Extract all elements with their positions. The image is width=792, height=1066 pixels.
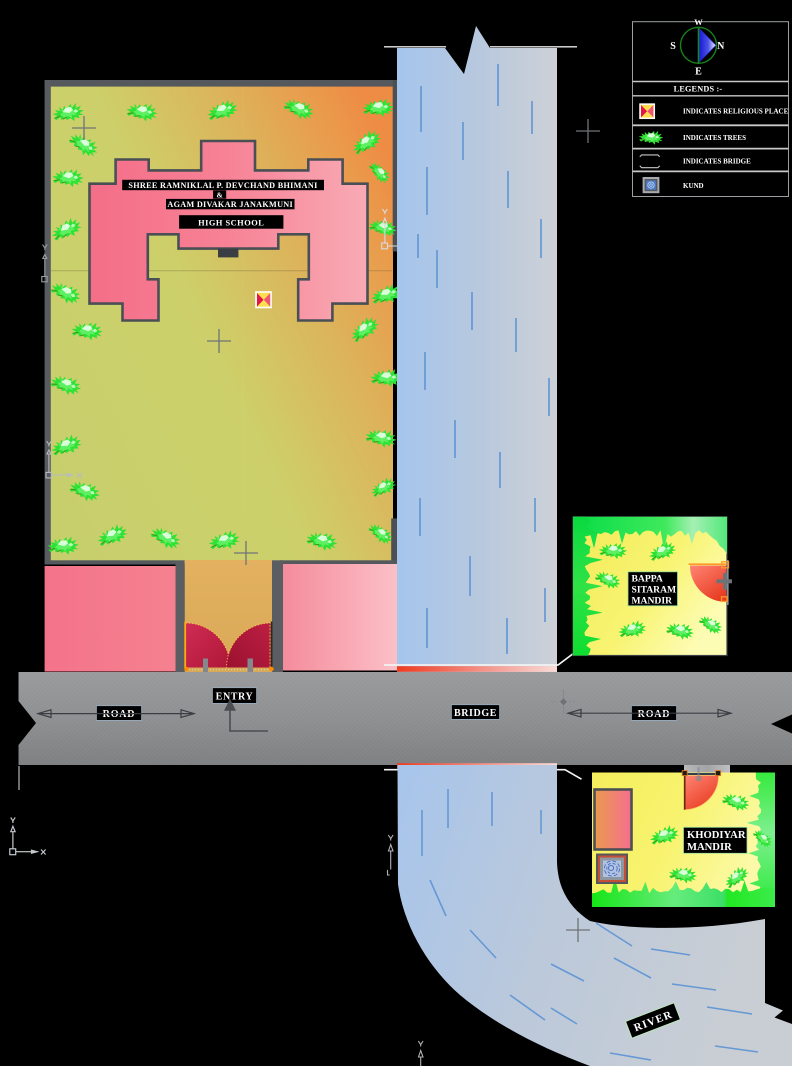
svg-text:KUND: KUND (683, 182, 704, 190)
svg-text:MANDIR: MANDIR (632, 595, 674, 606)
svg-text:SITARAM: SITARAM (632, 585, 677, 596)
svg-text:ROAD: ROAD (638, 709, 671, 720)
svg-text:AGAM DIVAKAR JANAKMUNI: AGAM DIVAKAR JANAKMUNI (167, 200, 293, 209)
svg-text:S: S (670, 41, 676, 52)
svg-text:HIGH SCHOOL: HIGH SCHOOL (198, 218, 264, 227)
svg-text:ROAD: ROAD (103, 709, 136, 720)
svg-text:ENTRY: ENTRY (216, 692, 254, 703)
svg-text:E: E (695, 67, 702, 78)
svg-text:BAPPA: BAPPA (632, 574, 663, 585)
svg-text:INDICATES TREES: INDICATES TREES (683, 134, 746, 142)
svg-text:KHODIYAR: KHODIYAR (687, 830, 746, 841)
svg-text:N: N (717, 41, 725, 52)
svg-text:INDICATES BRIDGE: INDICATES BRIDGE (683, 157, 751, 165)
svg-text:INDICATES RELIGIOUS PLACE: INDICATES RELIGIOUS PLACE (683, 108, 789, 116)
svg-text:MANDIR: MANDIR (687, 842, 732, 853)
svg-text:&: & (216, 190, 222, 199)
svg-text:SHREE RAMNIKLAL P. DEVCHAND BH: SHREE RAMNIKLAL P. DEVCHAND BHIMANI (128, 181, 317, 190)
svg-text:LEGENDS :-: LEGENDS :- (674, 85, 723, 94)
svg-text:BRIDGE: BRIDGE (454, 708, 497, 719)
svg-text:W: W (694, 17, 703, 27)
